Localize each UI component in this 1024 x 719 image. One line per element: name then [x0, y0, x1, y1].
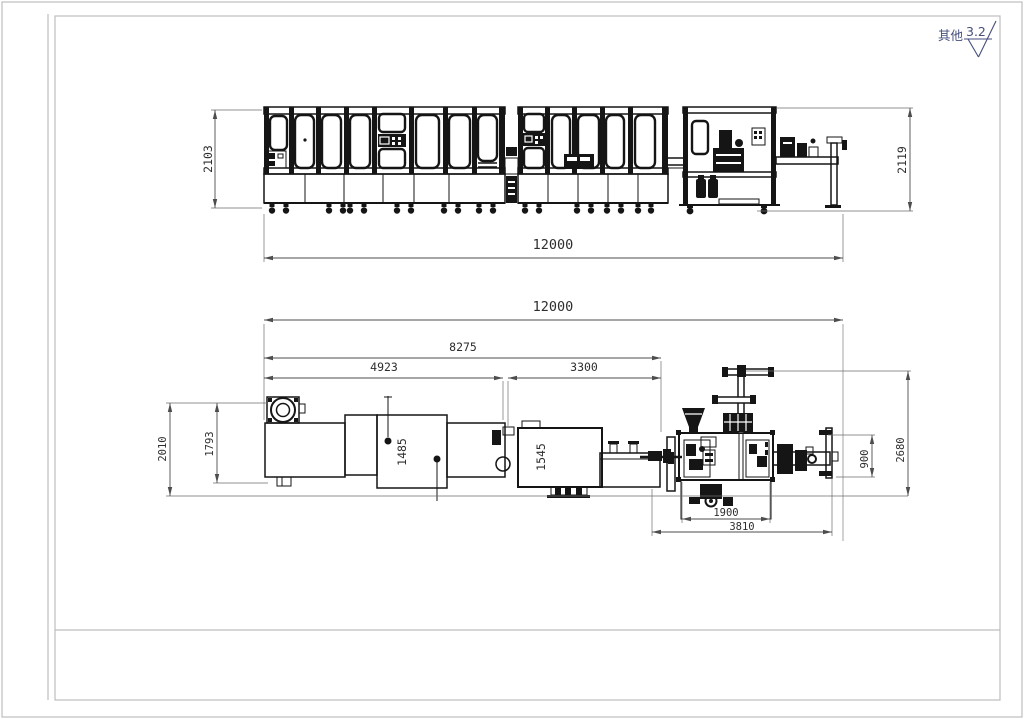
sheet-frame [2, 2, 1022, 717]
dim-elevation-height-right: 2119 [895, 146, 909, 174]
surface-roughness-note: 其他 3.2 [938, 21, 996, 57]
other-label: 其他 [938, 28, 964, 43]
dim-elevation-overall-length: 12000 [533, 237, 574, 253]
elevation-machine-3 [679, 107, 780, 214]
elevation-module-2 [518, 107, 668, 214]
dim-plan-depth-total: 2010 [157, 436, 169, 461]
dim-elevation-height-left: 2103 [201, 145, 215, 173]
elevation-connector [505, 147, 518, 203]
elevation-module-1 [264, 107, 505, 214]
dim-plan-left-segment: 4923 [370, 360, 398, 374]
dim-plan-right-depth: 2680 [895, 437, 907, 462]
dim-plan-mid-segment: 3300 [570, 360, 598, 374]
dim-plan-outfeed-width: 3810 [729, 521, 754, 533]
dim-plan-base-width: 1900 [713, 507, 738, 519]
plan-view: 12000 8275 4923 3300 2010 1793 1485 1545 [157, 299, 911, 541]
dim-plan-depth-body: 1793 [204, 431, 216, 456]
dim-plan-upper-length: 8275 [449, 340, 477, 354]
elevation-outfeed [776, 137, 847, 208]
plan-motor [267, 397, 305, 423]
dim-plan-bay-width-1545: 1545 [534, 443, 548, 471]
elevation-view: 2103 2119 12000 [201, 107, 913, 262]
elevation-bridge [667, 158, 684, 168]
dim-plan-overall-length: 12000 [533, 299, 574, 315]
dim-plan-right-offset: 900 [859, 450, 871, 469]
dim-plan-bay-width-1485: 1485 [395, 438, 409, 466]
drawing-sheet: 其他 3.2 [0, 0, 1024, 719]
roughness-value: 3.2 [966, 24, 986, 39]
plan-machine-bodies [265, 396, 602, 501]
machine-layout-drawing: 其他 3.2 [0, 0, 1024, 719]
